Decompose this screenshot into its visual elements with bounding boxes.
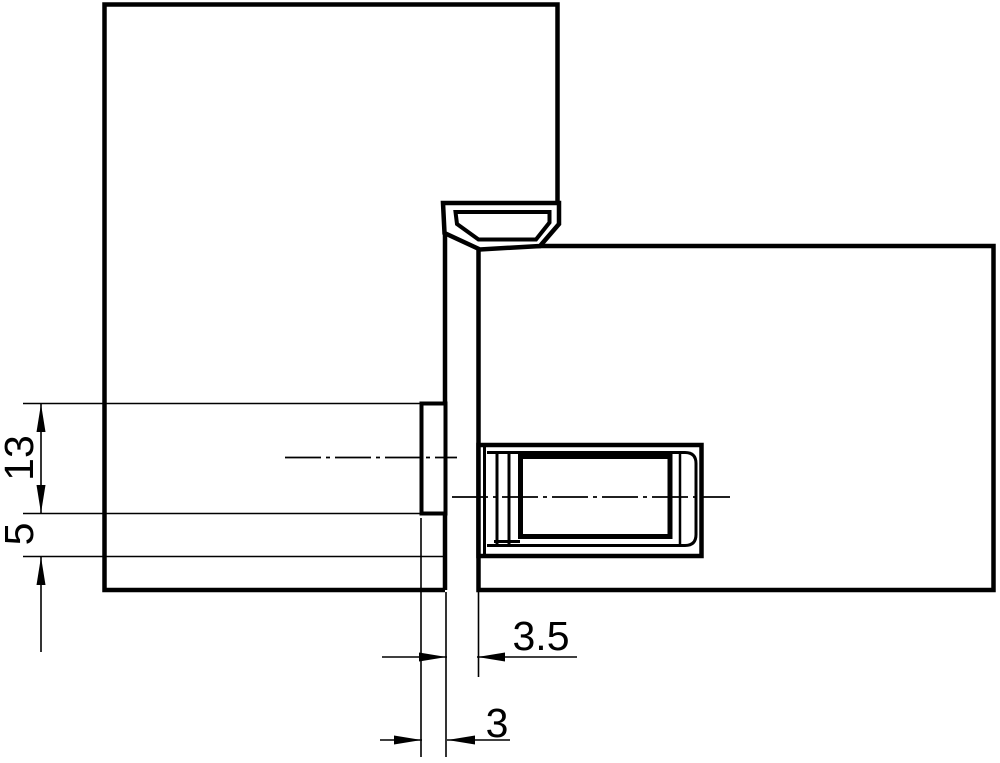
dimension-5-label: 5 (0, 523, 42, 546)
hinge-leaf (422, 404, 446, 514)
dimension-3-5: 3.5 (382, 613, 577, 662)
drawing-canvas: 13 5 3.5 3 (0, 0, 1000, 763)
dimension-13: 13 (0, 404, 46, 514)
technical-drawing: 13 5 3.5 3 (0, 0, 1000, 763)
hinge-knuckle (443, 203, 559, 250)
dimension-3-5-arrow-right (478, 653, 506, 662)
dimension-5-arrow-up (37, 557, 46, 585)
dimension-3-5-label: 3.5 (513, 613, 570, 659)
hinge-body (479, 445, 702, 556)
dimension-5: 5 (0, 523, 46, 652)
extension-lines (23, 404, 479, 758)
dimension-13-label: 13 (0, 435, 42, 481)
dimension-13-arrow-up (37, 404, 46, 432)
dimension-3-arrow-right (448, 736, 476, 745)
dimension-3-arrow-left (394, 736, 422, 745)
dimension-3-5-arrow-left (419, 653, 447, 662)
dimension-3-label: 3 (486, 700, 509, 746)
hinge-knuckle-inner (456, 212, 550, 240)
dimension-13-arrow-down (37, 485, 46, 513)
dimension-3: 3 (380, 700, 510, 746)
